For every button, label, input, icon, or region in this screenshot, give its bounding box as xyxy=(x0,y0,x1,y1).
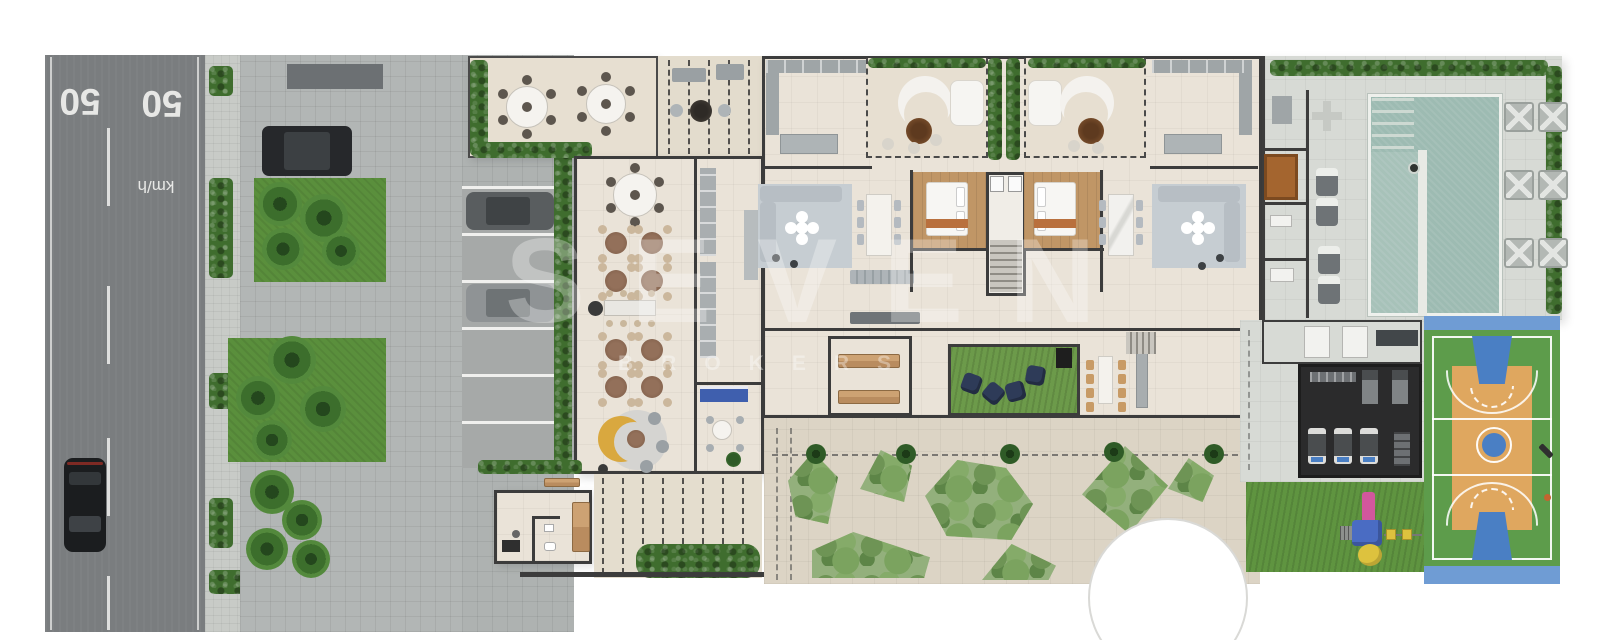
corridor-bench xyxy=(850,312,920,324)
court-band-bottom xyxy=(1424,566,1560,584)
sun-lounger xyxy=(1318,246,1340,274)
kitchen-counter xyxy=(700,168,716,256)
street-edge-line-right xyxy=(197,57,199,630)
terrace-planter xyxy=(868,58,986,68)
pool-ladder xyxy=(1408,162,1420,174)
treadmill xyxy=(1360,428,1378,464)
cafe-table xyxy=(605,232,627,254)
car-at-entrance xyxy=(262,126,352,176)
speed-limit-marking-left: 50 xyxy=(56,80,104,122)
sideboard-bench xyxy=(850,270,914,284)
palm-tree xyxy=(322,232,360,270)
kids-pool-overlay xyxy=(1371,152,1418,314)
pool-deck-divider xyxy=(1418,150,1427,316)
bar-counter xyxy=(700,386,748,402)
suv-roof xyxy=(486,197,530,225)
parasol-seat xyxy=(1538,170,1568,200)
center-circle xyxy=(1482,433,1506,457)
sidewalk-planter xyxy=(209,498,233,548)
office-chair xyxy=(512,530,520,538)
gourmet-counter-table xyxy=(604,300,656,316)
court-cone xyxy=(1544,494,1551,501)
wood-bench xyxy=(838,354,900,368)
terrace-divider-hedge xyxy=(988,58,1002,160)
playground-lawn xyxy=(1246,482,1424,572)
pergola-slat xyxy=(602,478,604,574)
counter-stools xyxy=(606,290,613,297)
swing-seat xyxy=(1402,529,1412,540)
wall xyxy=(694,156,697,474)
car-tail-lights xyxy=(67,462,103,465)
terrace-round-table xyxy=(506,86,548,128)
suv-roof xyxy=(486,289,530,317)
locker-bench xyxy=(1304,326,1330,358)
gym-machine xyxy=(1362,370,1378,404)
pouf-dots xyxy=(1216,254,1224,262)
palm-tree xyxy=(268,336,316,384)
parasol-seat xyxy=(1504,102,1534,132)
planter-pot xyxy=(588,301,603,316)
palm-tree xyxy=(246,528,288,570)
palm-tree xyxy=(258,182,302,226)
annex-hedge xyxy=(478,460,582,474)
stairs-secondary xyxy=(1126,332,1156,354)
lane-divider-dash xyxy=(107,576,110,630)
terrace-poufs xyxy=(1068,140,1080,152)
kitchen-counter-right-unit xyxy=(1239,73,1252,135)
gym-machine xyxy=(1392,370,1408,404)
pouf-dots xyxy=(772,254,780,262)
pool-side-table xyxy=(1323,101,1331,131)
kitchen-counter-left-unit xyxy=(766,73,779,135)
lane-divider-dash xyxy=(107,438,110,516)
fire-table xyxy=(690,100,712,122)
site-plan-rendering: 50 50 km/h xyxy=(0,0,1600,640)
office-desk xyxy=(502,540,520,552)
tv-console xyxy=(1056,348,1072,368)
pergola-bench xyxy=(672,68,706,82)
fire-pit xyxy=(1078,118,1104,144)
pool-steps xyxy=(1372,98,1414,150)
pergola-walkway-north xyxy=(658,56,762,158)
car-on-street xyxy=(64,458,106,552)
elevator-cab xyxy=(1008,176,1022,192)
parked-suv-silver xyxy=(466,284,554,322)
terrace-round-table xyxy=(586,84,626,124)
sauna-door xyxy=(1264,154,1298,200)
driveway-ramp xyxy=(287,64,383,89)
sun-lounger xyxy=(1028,80,1062,126)
wall xyxy=(1262,258,1308,261)
plaza-tree xyxy=(1204,444,1224,464)
sports-court xyxy=(1424,316,1560,584)
cafe-table xyxy=(605,270,627,292)
kitchen-island-right xyxy=(1164,134,1222,154)
parking-hedge xyxy=(554,148,572,472)
wc-sink xyxy=(544,524,554,532)
wall xyxy=(1100,170,1103,292)
terrace-poufs xyxy=(882,138,894,150)
treadmill xyxy=(1334,428,1352,464)
sofa-left-unit xyxy=(760,202,776,262)
playground-tower-blue xyxy=(1352,520,1382,546)
wall xyxy=(764,328,1260,331)
beanbag xyxy=(1024,364,1046,386)
lane-divider-dash xyxy=(107,286,110,364)
pergola-seat xyxy=(670,104,683,117)
plaza-tree xyxy=(1104,442,1124,462)
wall xyxy=(532,516,535,562)
plaza-tree xyxy=(806,444,826,464)
palm-tree xyxy=(262,228,304,270)
sun-lounger xyxy=(1316,198,1338,226)
fire-pit xyxy=(906,118,932,144)
sun-lounger xyxy=(1318,276,1340,304)
car-rear-window xyxy=(69,472,101,485)
parked-suv-dark xyxy=(466,192,554,230)
lounge-armchairs xyxy=(648,412,661,425)
palm-tree xyxy=(292,540,330,578)
parasol-seat xyxy=(1504,170,1534,200)
sidewalk-planter xyxy=(209,66,233,96)
car-roof xyxy=(284,132,330,170)
cafe-table xyxy=(641,270,663,292)
terrace-planter xyxy=(1028,58,1146,68)
sofa-left-unit xyxy=(760,186,842,202)
wood-bench xyxy=(838,390,900,404)
bed-pillow xyxy=(1037,187,1046,207)
pergola-seat xyxy=(718,104,731,117)
cafe-table xyxy=(641,339,663,361)
pergola-slat xyxy=(622,478,624,574)
terrace-divider-hedge xyxy=(1006,58,1020,160)
flower-coffee-table xyxy=(796,222,808,234)
wood-planter-bench xyxy=(572,502,590,552)
changing-room-fixture xyxy=(1270,268,1294,282)
wall xyxy=(764,166,872,169)
outdoor-dining-chairs xyxy=(1118,360,1126,370)
kitchen-island-left xyxy=(780,134,838,154)
lounge-table xyxy=(627,430,645,448)
speed-limit-marking-right: 50 xyxy=(138,82,186,124)
wall xyxy=(1024,248,1104,251)
wall xyxy=(532,516,560,519)
wood-bench xyxy=(544,478,580,487)
dining-table-left xyxy=(866,194,892,256)
parasol-seat xyxy=(1504,238,1534,268)
speed-unit-marking: km/h xyxy=(126,176,186,196)
lane-divider-dash xyxy=(107,128,110,206)
lounge-pouf xyxy=(598,464,608,474)
kitchen-counter-right-unit xyxy=(1152,60,1252,73)
service-counter xyxy=(1272,96,1292,124)
palm-tree xyxy=(252,420,292,460)
sidewalk-planter xyxy=(209,178,233,278)
changing-room-fixture xyxy=(1270,215,1292,227)
bed-throw xyxy=(1034,219,1076,228)
stairs xyxy=(990,240,1022,292)
cafe-table xyxy=(641,232,663,254)
street-edge-line-left xyxy=(50,57,52,630)
gym-weight-rack xyxy=(1310,372,1356,382)
kitchen-counter xyxy=(744,210,758,280)
sun-lounger xyxy=(950,80,984,126)
cafe-table xyxy=(641,376,663,398)
palm-tree xyxy=(236,376,280,420)
treadmill xyxy=(1308,428,1326,464)
outdoor-dining-chairs xyxy=(1086,360,1094,370)
wall xyxy=(1262,202,1308,205)
wc-toilet xyxy=(544,542,556,551)
locker-bench xyxy=(1342,326,1368,358)
swing-seat xyxy=(1386,529,1396,540)
garden-edge-wall xyxy=(520,572,766,577)
amenity-dashed-line xyxy=(1248,330,1250,470)
bed-pillow xyxy=(956,187,965,207)
bench-room xyxy=(828,336,912,416)
dining-table-right-marble xyxy=(1108,194,1134,256)
wall xyxy=(1150,166,1258,169)
bar-chairs xyxy=(706,416,714,424)
locker-counter xyxy=(1376,330,1418,346)
gym-bench-station xyxy=(1394,432,1410,466)
cafe-table xyxy=(605,376,627,398)
outdoor-dining-table xyxy=(1098,356,1113,404)
kitchen-counter-left-unit xyxy=(766,60,866,73)
setback-dashed-line-vertical xyxy=(790,428,792,580)
grill-counter xyxy=(1136,348,1148,408)
playground-slide-yellow xyxy=(1358,544,1382,566)
sun-lounger xyxy=(1316,168,1338,196)
plaza-tree xyxy=(896,444,916,464)
pool-hedge-top xyxy=(1270,60,1548,76)
plaza-tree xyxy=(1000,444,1020,464)
sofa-right-unit xyxy=(1224,202,1240,262)
pergola-bench xyxy=(716,64,744,80)
parasol-seat xyxy=(1538,102,1568,132)
pergola-slat xyxy=(748,60,750,154)
bed-throw xyxy=(926,219,968,228)
court-line xyxy=(1432,474,1552,476)
potted-plant xyxy=(726,452,741,467)
court-band-top xyxy=(1424,316,1560,330)
wall xyxy=(1262,148,1308,151)
palm-tree xyxy=(300,386,346,432)
flower-coffee-table xyxy=(1192,222,1204,234)
wall xyxy=(694,382,764,385)
parasol-seat xyxy=(1538,238,1568,268)
cafe-table xyxy=(605,339,627,361)
elevator-cab xyxy=(990,176,1004,192)
palm-tree xyxy=(282,500,322,540)
kitchen-counter xyxy=(700,262,716,358)
setback-dashed-line-vertical xyxy=(776,428,778,580)
gourmet-round-table-large xyxy=(613,173,657,217)
car-windshield xyxy=(69,516,101,532)
bar-table xyxy=(712,420,732,440)
court-line xyxy=(1432,418,1552,420)
sofa-right-unit xyxy=(1158,186,1240,202)
